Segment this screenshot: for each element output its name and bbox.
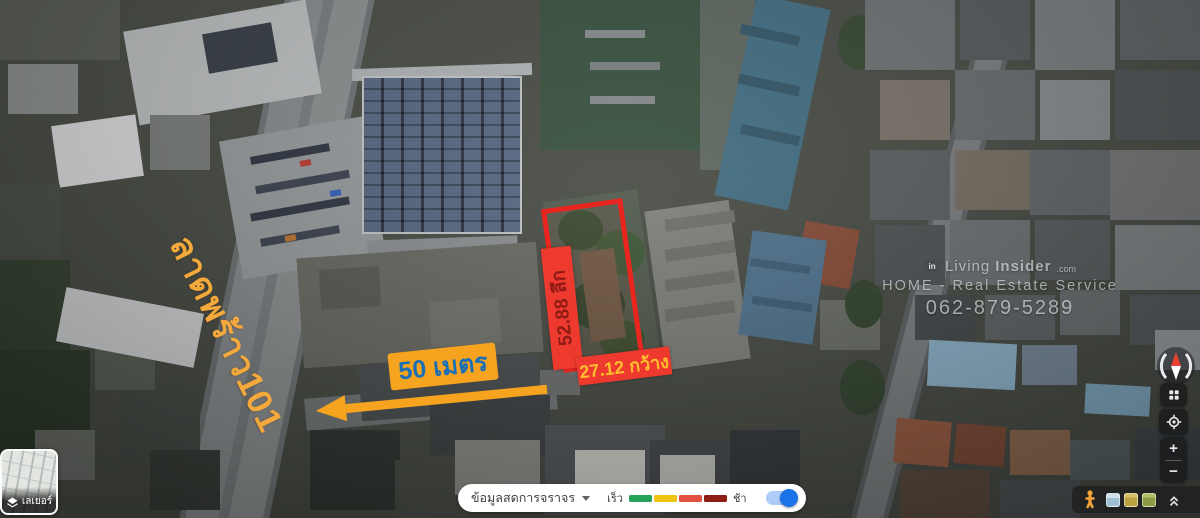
imagery-thumbnail[interactable] <box>1142 493 1156 507</box>
terrain-feature <box>955 70 1035 140</box>
terrain-feature <box>953 423 1006 467</box>
traffic-chip: ข้อมูลสดการจราจร เร็ว ช้า <box>458 484 806 512</box>
terrain-feature <box>1084 383 1150 416</box>
terrain-feature <box>1110 150 1200 220</box>
terrain-feature <box>1010 430 1070 475</box>
legend-color-scale <box>629 495 727 502</box>
terrain-feature <box>395 460 455 518</box>
chevron-up-double-icon <box>1166 492 1182 508</box>
chevron-down-icon <box>582 496 590 501</box>
terrain-feature <box>1070 440 1130 480</box>
terrain-feature <box>893 418 952 468</box>
watermark-service-line: HOME - Real Estate Service <box>880 278 1120 294</box>
terrain-feature <box>870 150 950 220</box>
legend-fast-label: เร็ว <box>607 489 623 507</box>
layers-label: เลเยอร์ <box>22 494 52 509</box>
compass-icon <box>1155 345 1197 387</box>
arrow-head-icon <box>315 395 347 424</box>
terrain-feature <box>150 450 220 510</box>
terrain-feature <box>1115 70 1200 140</box>
terrain-feature <box>955 150 1030 210</box>
traffic-dropdown-button[interactable]: ข้อมูลสดการจราจร <box>471 488 590 508</box>
terrain-feature <box>1030 150 1110 215</box>
terrain-feature <box>845 280 883 328</box>
layers-button[interactable]: เลเยอร์ <box>0 449 58 515</box>
terrain-feature <box>51 114 144 187</box>
terrain-feature <box>1000 480 1080 518</box>
grid-icon <box>1167 388 1181 402</box>
collapse-tray-button[interactable] <box>1166 492 1182 508</box>
terrain-feature <box>1120 0 1200 60</box>
traffic-speed-legend: เร็ว ช้า <box>607 489 747 507</box>
livinginsider-logo-icon: in <box>924 260 940 274</box>
zoom-control: + − <box>1160 437 1187 483</box>
terrain-feature <box>865 0 955 70</box>
terrain-feature <box>429 298 502 348</box>
imagery-thumbnail[interactable] <box>1124 493 1138 507</box>
layers-icon <box>6 496 19 509</box>
watermark: in LivingInsider .com HOME - Real Estate… <box>880 258 1120 320</box>
terrain-feature <box>927 340 1017 391</box>
imagery-tray <box>1072 486 1200 513</box>
legend-slow-label: ช้า <box>733 489 747 507</box>
terrain-feature <box>1022 345 1077 385</box>
watermark-phone: 062-879-5289 <box>880 297 1120 320</box>
terrain-feature <box>590 62 660 70</box>
compass-button[interactable] <box>1155 345 1197 387</box>
solar-panel-rooftop <box>362 76 522 234</box>
terrain-feature <box>1115 225 1200 290</box>
traffic-legend-segment <box>629 495 652 502</box>
traffic-legend-segment <box>679 495 702 502</box>
brand-insider: Insider <box>995 258 1051 275</box>
zoom-in-button[interactable]: + <box>1160 437 1187 460</box>
brand-living: Living <box>945 258 990 275</box>
terrain-feature <box>900 470 990 518</box>
terrain-feature <box>1035 0 1115 70</box>
terrain-feature <box>960 0 1030 60</box>
imagery-thumbnail[interactable] <box>1106 493 1120 507</box>
watermark-brand: in LivingInsider .com <box>880 258 1120 275</box>
terrain-feature <box>1040 80 1110 140</box>
terrain-feature <box>0 185 60 255</box>
terrain-feature <box>0 0 120 60</box>
zoom-out-button[interactable]: − <box>1160 461 1187 484</box>
map-canvas[interactable]: ลาดพร้าว101 52.88 ลึก 27.12 กว้าง 50 เมต… <box>0 0 1200 518</box>
layers-caption: เลเยอร์ <box>2 487 56 513</box>
terrain-feature <box>310 430 400 510</box>
brand-tld: .com <box>1056 264 1076 274</box>
terrain-feature <box>738 230 827 344</box>
terrain-feature <box>319 266 382 310</box>
traffic-toggle[interactable] <box>766 491 796 505</box>
my-location-button[interactable] <box>1159 409 1188 435</box>
terrain-feature <box>540 0 725 150</box>
terrain-feature <box>590 96 655 104</box>
grid-view-button[interactable] <box>1160 383 1187 407</box>
terrain-feature <box>8 64 78 114</box>
traffic-legend-segment <box>704 495 727 502</box>
pegman-icon <box>1084 490 1096 509</box>
terrain-feature <box>585 30 645 38</box>
traffic-legend-segment <box>654 495 677 502</box>
terrain-feature <box>840 360 885 415</box>
terrain-feature <box>880 80 950 140</box>
terrain-feature <box>660 455 715 485</box>
terrain-feature <box>150 115 210 170</box>
pegman-button[interactable] <box>1084 490 1096 509</box>
traffic-label: ข้อมูลสดการจราจร <box>471 488 575 508</box>
toggle-knob <box>780 489 798 507</box>
locate-icon <box>1166 414 1182 430</box>
